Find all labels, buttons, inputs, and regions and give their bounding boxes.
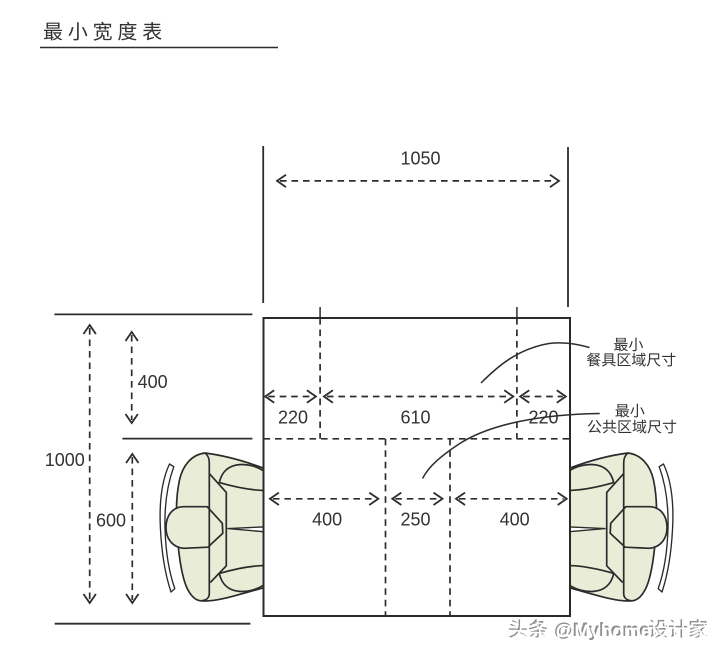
svg-text:400: 400	[138, 372, 168, 392]
svg-text:1050: 1050	[400, 149, 440, 169]
svg-text:610: 610	[400, 408, 430, 428]
svg-text:400: 400	[312, 510, 342, 530]
svg-text:250: 250	[400, 510, 430, 530]
svg-text:400: 400	[500, 510, 530, 530]
svg-text:220: 220	[278, 408, 308, 428]
svg-text:600: 600	[96, 511, 126, 531]
svg-text:@Myhome: @Myhome	[556, 622, 652, 643]
svg-text:1000: 1000	[45, 450, 85, 470]
